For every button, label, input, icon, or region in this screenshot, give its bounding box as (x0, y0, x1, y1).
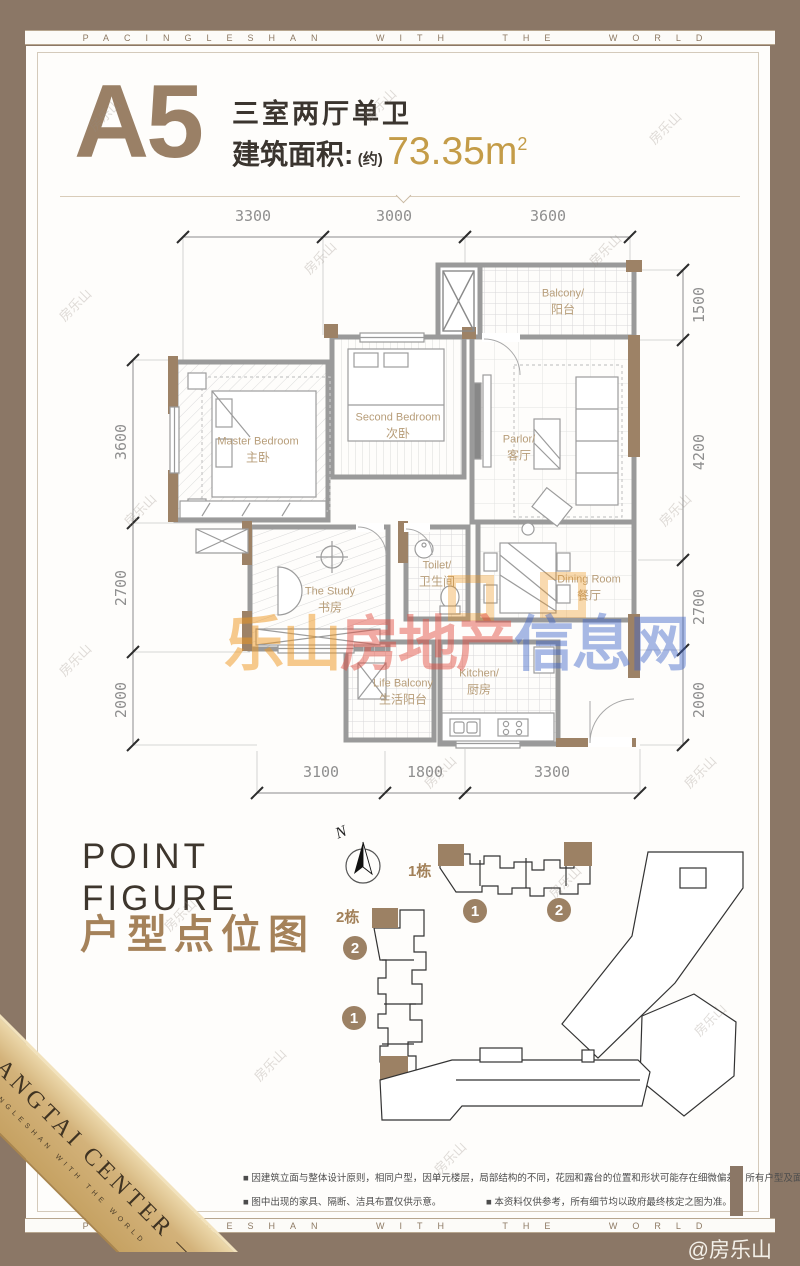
disclaimer-accent-bar (730, 1166, 743, 1216)
svg-text:1: 1 (350, 1010, 358, 1027)
area-line: 建筑面积: (约) 73.35m2 (232, 130, 527, 174)
svg-text:2: 2 (555, 902, 563, 919)
room-label-parlor: Parlor/ 客厅 (503, 432, 535, 463)
room-label-life-balcony: Life Balcony 生活阳台 (373, 676, 433, 707)
room-label-balcony: Balcony/ 阳台 (542, 286, 584, 317)
tower1-unit-b (564, 842, 592, 866)
corner-ribbon: BANGTAI CENTER PACINGLESHAN WITH THE WOR… (0, 952, 300, 1252)
dim-left-3: 2000 (112, 682, 130, 718)
area-exponent: 2 (517, 134, 527, 154)
dim-top-3: 3600 (530, 207, 566, 225)
disclaimer-line2: ■ 图中出现的家具、隔断、洁具布置仅供示意。 ■ 本资料仅供参考，所有细节均以政… (243, 1194, 732, 1208)
disclaimer-line1: ■ 因建筑立面与整体设计原则，相同户型，因单元楼层，局部结构的不同，花园和露台的… (243, 1170, 800, 1184)
dim-bottom-1: 3100 (303, 763, 339, 781)
floor-plan-svg (110, 215, 710, 815)
tower2-footprint (374, 910, 426, 1074)
site-plan-svg: 1 2 2 1 (330, 828, 780, 1140)
ribbon-dash (176, 1241, 201, 1252)
area-paren: (约) (358, 151, 383, 168)
dim-right-4: 2000 (690, 682, 708, 718)
area-value: 73.35m2 (387, 130, 527, 173)
dim-bottom-2: 1800 (407, 763, 443, 781)
tower1-unit-a (438, 844, 464, 866)
dim-left-2: 2700 (112, 570, 130, 606)
watermark-credit: @房乐山 (560, 1234, 772, 1264)
dim-bottom-3: 3300 (534, 763, 570, 781)
layout-type: 三室两厅单卫 (232, 92, 412, 131)
compass-icon (346, 842, 380, 883)
dim-top-1: 3300 (235, 207, 271, 225)
tower2-unit-a (372, 908, 398, 928)
unit-code: A5 (74, 70, 201, 174)
poster-page: PACINGLESHAN WITH THE WORLD A5 三室两厅单卫 建筑… (0, 0, 800, 1266)
dim-right-1: 1500 (690, 287, 708, 323)
top-banner: PACINGLESHAN WITH THE WORLD (25, 30, 775, 45)
tv (474, 383, 481, 459)
area-label: 建筑面积: (232, 139, 353, 170)
svg-text:2: 2 (351, 940, 359, 957)
svg-text:1: 1 (471, 903, 479, 920)
dim-top-2: 3000 (376, 207, 412, 225)
room-label-second-bedroom: Second Bedroom 次卧 (356, 410, 441, 441)
room-label-master-bedroom: Master Bedroom 主卧 (217, 434, 298, 465)
dim-left-1: 3600 (112, 424, 130, 460)
ribbon-title: BANGTAI CENTER (0, 1040, 179, 1244)
vase (522, 523, 534, 535)
room-label-study: The Study 书房 (305, 584, 355, 615)
fridge (534, 647, 554, 673)
room-label-dining: Dining Room 餐厅 (557, 572, 621, 603)
room-label-kitchen: Kitchen/ 厨房 (459, 666, 499, 697)
stove (498, 719, 528, 736)
commercial-buildings (380, 852, 743, 1120)
room-label-toilet: Toilet/ 卫生间 (419, 558, 455, 589)
dim-right-2: 4200 (690, 434, 708, 470)
dim-right-3: 2700 (690, 589, 708, 625)
